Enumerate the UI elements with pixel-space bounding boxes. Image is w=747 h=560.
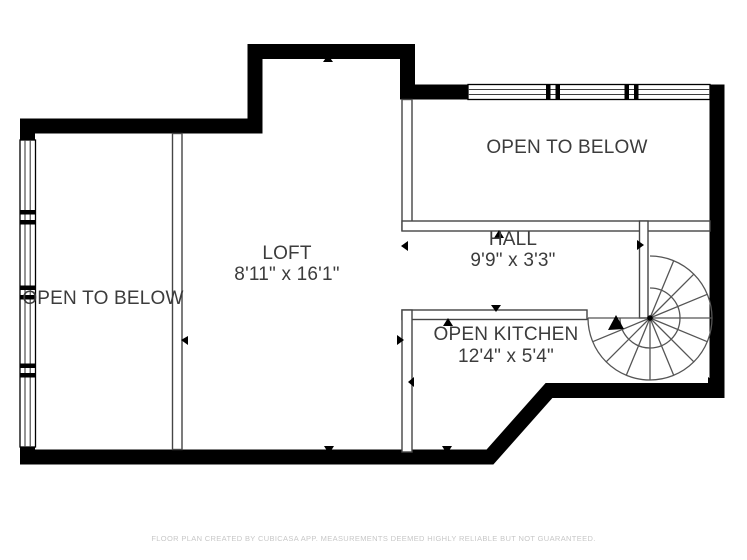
spiral-staircase-icon [588,256,712,380]
room-label-open-to-below-right: OPEN TO BELOW [467,137,667,158]
room-dimensions: 9'9" x 3'3" [413,250,613,271]
room-label-loft: LOFT 8'11" x 16'1" [187,243,387,285]
footer-disclaimer: FLOOR PLAN CREATED BY CUBICASA APP. MEAS… [0,534,747,543]
room-name: OPEN TO BELOW [467,137,667,158]
room-name: LOFT [187,243,387,264]
interior-wall-kitchen-top [402,310,587,320]
room-name: OPEN KITCHEN [406,324,606,346]
window-top-icon [468,84,710,100]
interior-wall-hall-right [640,221,649,318]
room-dimensions: 8'11" x 16'1" [187,264,387,285]
room-label-hall: HALL 9'9" x 3'3" [413,229,613,271]
room-dimensions: 12'4" x 5'4" [406,346,606,368]
stair-direction-arrow-icon [608,315,624,330]
triangle-marker-icon [401,241,408,251]
room-name: OPEN TO BELOW [3,288,203,309]
room-label-open-kitchen: OPEN KITCHEN 12'4" x 5'4" [406,324,606,368]
room-name: HALL [413,229,613,250]
floor-plan: OPEN TO BELOW LOFT 8'11" x 16'1" OPEN TO… [0,0,747,560]
room-label-open-to-below-left: OPEN TO BELOW [3,288,203,309]
interior-wall-rightroom-left [402,100,412,231]
